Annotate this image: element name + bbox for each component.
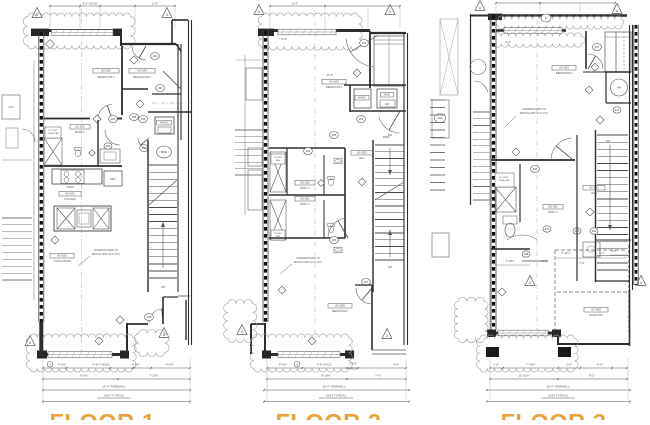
svg-text:W/D: W/D [384, 93, 391, 97]
svg-text:9′-6⅝″: 9′-6⅝″ [80, 374, 88, 378]
svg-text:2′-8″: 2′-8″ [566, 363, 572, 367]
svg-text:2′-0″: 2′-0″ [542, 259, 547, 263]
svg-text:A2-203: A2-203 [329, 80, 339, 84]
svg-text:16″VENT: 16″VENT [274, 157, 283, 159]
svg-text:BEDROOM 1: BEDROOM 1 [98, 75, 115, 79]
svg-text:8′-2″: 8′-2″ [589, 374, 595, 378]
svg-text:SHWR FAN: SHWR FAN [499, 179, 510, 182]
svg-text:UP: UP [161, 285, 165, 289]
svg-text:BIKE: BIKE [161, 150, 168, 154]
svg-text:A2-300: A2-300 [591, 308, 601, 312]
svg-text:INTERIOR DIMS TO: INTERIOR DIMS TO [296, 256, 320, 260]
svg-text:3′-6½″: 3′-6½″ [132, 363, 140, 367]
svg-text:WH: WH [617, 86, 621, 90]
svg-text:205: 205 [332, 133, 337, 137]
svg-text:16″ VENT: 16″ VENT [499, 177, 509, 179]
svg-text:102: 102 [158, 86, 163, 90]
svg-text:204: 204 [306, 149, 311, 153]
svg-text:7′-10½″: 7′-10½″ [526, 363, 536, 367]
svg-text:UP: UP [388, 265, 392, 269]
svg-text:7′-10½″: 7′-10½″ [505, 259, 514, 263]
svg-text:HOLD: HOLD [349, 367, 357, 371]
svg-text:A2-104: A2-104 [137, 69, 147, 73]
svg-text:FAN: FAN [276, 159, 281, 162]
svg-text:108: 108 [141, 117, 146, 121]
svg-text:LIVING ROOM: LIVING ROOM [53, 259, 70, 263]
svg-text:16′-0″ FIREWALL: 16′-0″ FIREWALL [546, 385, 570, 389]
svg-text:MATCH UNIT A2 U.O.N.: MATCH UNIT A2 U.O.N. [520, 111, 548, 115]
svg-text:A2-101: A2-101 [65, 192, 75, 196]
svg-text:304: 304 [615, 108, 620, 112]
svg-text:7′-6″: 7′-6″ [579, 261, 584, 265]
svg-text:5′-4″: 5′-4″ [281, 37, 287, 41]
svg-text:MATCH UNIT A3 U.O.N.: MATCH UNIT A3 U.O.N. [294, 260, 322, 264]
svg-text:KITCHEN: KITCHEN [64, 197, 76, 201]
svg-text:6′-0″: 6′-0″ [597, 363, 603, 367]
svg-text:10X: 10X [111, 117, 116, 121]
svg-text:11′-10⅝″: 11′-10⅝″ [518, 374, 529, 378]
svg-text:A2-105: A2-105 [101, 69, 111, 73]
svg-text:16″ VENT: 16″ VENT [48, 130, 58, 132]
svg-text:A2-303: A2-303 [559, 66, 569, 70]
svg-text:2′-4″: 2′-4″ [152, 2, 158, 6]
svg-text:HALL: HALL [591, 191, 598, 195]
svg-text:A2-302: A2-302 [548, 205, 558, 209]
svg-text:5′-6½″ HOLD: 5′-6½″ HOLD [93, 363, 110, 367]
svg-text:G: G [545, 16, 547, 20]
svg-text:3′-6½″: 3′-6½″ [349, 362, 357, 366]
svg-text:A2-201: A2-201 [300, 197, 310, 201]
svg-text:A2-202: A2-202 [300, 181, 310, 185]
svg-text:9′-6″: 9′-6″ [611, 249, 616, 253]
svg-text:VAC: VAC [8, 105, 13, 109]
svg-text:5′-8″ HOLD: 5′-8″ HOLD [317, 363, 332, 367]
svg-text:BATH 3: BATH 3 [301, 186, 310, 190]
svg-text:16′-0″ FIREWALL: 16′-0″ FIREWALL [322, 385, 346, 389]
svg-text:300: 300 [545, 227, 550, 231]
svg-text:301: 301 [592, 229, 597, 233]
svg-text:207: 207 [364, 280, 369, 284]
svg-text:BEDROOM 2: BEDROOM 2 [332, 309, 349, 313]
svg-text:REAR ENTRY: REAR ENTRY [133, 75, 151, 79]
svg-text:8′-4″: 8′-4″ [327, 73, 333, 77]
svg-text:HVAC: HVAC [358, 96, 367, 100]
svg-text:BATH 4: BATH 4 [549, 210, 558, 214]
svg-text:REF: REF [111, 178, 116, 181]
svg-text:9′-9″: 9′-9″ [393, 363, 399, 367]
svg-text:304: 304 [533, 167, 538, 171]
svg-text:186: 186 [106, 144, 111, 148]
svg-text:5′-4″: 5′-4″ [505, 40, 511, 44]
svg-text:BATH 2: BATH 2 [301, 202, 310, 206]
svg-text:A2-200: A2-200 [335, 304, 345, 308]
svg-text:HVAC: HVAC [160, 121, 169, 125]
svg-text:UNIT TYPE A2: UNIT TYPE A2 [326, 394, 346, 398]
svg-text:8′-1″: 8′-1″ [599, 251, 604, 255]
svg-text:7′-10½″: 7′-10½″ [149, 374, 159, 378]
svg-text:4′-6½″: 4′-6½″ [166, 363, 174, 367]
svg-text:UNIT TYPE A2: UNIT TYPE A2 [548, 394, 568, 398]
svg-text:A: A [296, 362, 298, 366]
svg-text:103: 103 [153, 54, 158, 58]
svg-text:A2-100: A2-100 [57, 254, 67, 258]
svg-text:A2-205: A2-205 [357, 151, 367, 155]
svg-text:#48: #48 [385, 103, 390, 106]
svg-text:16′-0″ FIREWALL: 16′-0″ FIREWALL [102, 385, 126, 389]
svg-text:5′-4″: 5′-4″ [292, 2, 298, 6]
svg-text:3′-11½″: 3′-11½″ [562, 251, 571, 255]
svg-text:A: A [49, 362, 51, 366]
svg-text:9′-10⅝″: 9′-10⅝″ [321, 374, 331, 378]
svg-text:OVEN: OVEN [66, 186, 73, 189]
svg-text:DN: DN [388, 133, 392, 137]
svg-text:16″VENT: 16″VENT [274, 233, 283, 235]
svg-text:7′-0″: 7′-0″ [375, 374, 381, 378]
svg-text:INTERIOR DIMS TO: INTERIOR DIMS TO [94, 248, 118, 252]
svg-text:BEDROOM 3: BEDROOM 3 [326, 85, 343, 89]
svg-text:FLOOR 3: FLOOR 3 [500, 409, 606, 420]
svg-text:105: 105 [132, 115, 137, 119]
svg-text:308: 308 [524, 252, 529, 256]
svg-text:HALL: HALL [359, 156, 366, 160]
svg-text:204: 204 [359, 117, 364, 121]
svg-text:3′-0″ HOLD: 3′-0″ HOLD [82, 2, 98, 6]
svg-text:SHWR FAN: SHWR FAN [48, 132, 59, 135]
svg-text:ROOFTOP: ROOFTOP [589, 313, 602, 317]
svg-text:A2-301: A2-301 [589, 186, 599, 190]
svg-text:60A: 60A [438, 116, 443, 120]
svg-text:FLOOR 1: FLOOR 1 [49, 409, 155, 420]
svg-text:FLOOR 2: FLOOR 2 [275, 409, 381, 420]
svg-text:UNIT TYPE A2: UNIT TYPE A2 [104, 394, 124, 398]
svg-text:1′-8″: 1′-8″ [493, 363, 499, 367]
svg-text:BEDROOM 4: BEDROOM 4 [556, 71, 573, 75]
svg-text:MATCH UNIT A3 U.O.N.: MATCH UNIT A3 U.O.N. [92, 252, 120, 256]
svg-text:201: 201 [362, 41, 367, 45]
svg-text:307: 307 [595, 45, 600, 49]
svg-text:BATH 1: BATH 1 [75, 130, 85, 134]
svg-text:4′-0½″: 4′-0½″ [279, 363, 287, 367]
svg-text:203: 203 [332, 238, 337, 242]
svg-text:4′-0½″: 4′-0½″ [58, 363, 66, 367]
svg-text:A2-102: A2-102 [75, 125, 85, 129]
svg-text:10B: 10B [147, 315, 152, 319]
svg-text:INTERIOR DIMS TO: INTERIOR DIMS TO [522, 107, 546, 111]
